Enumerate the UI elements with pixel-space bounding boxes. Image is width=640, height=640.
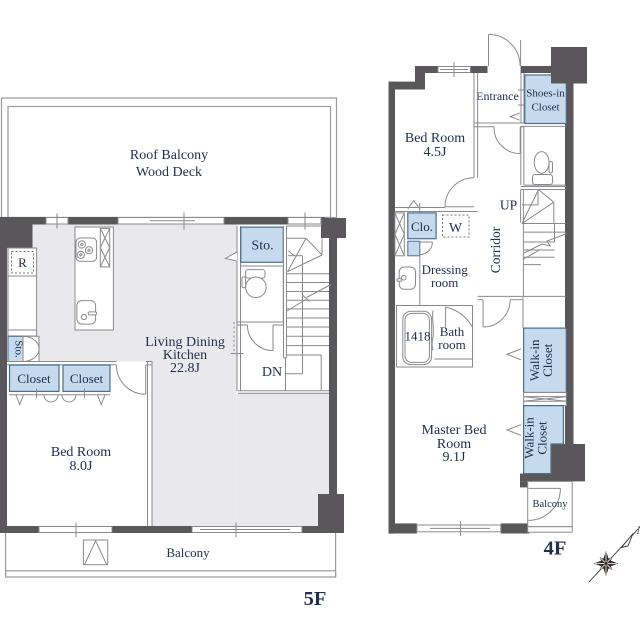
- svg-text:Wood Deck: Wood Deck: [136, 165, 202, 180]
- svg-text:5F: 5F: [304, 588, 327, 610]
- svg-text:Balcony: Balcony: [533, 499, 569, 510]
- svg-text:1418: 1418: [405, 329, 431, 344]
- svg-text:4F: 4F: [544, 538, 567, 560]
- svg-text:Roof Balcony: Roof Balcony: [130, 148, 208, 163]
- svg-text:Entrance: Entrance: [476, 89, 519, 103]
- svg-text:Closet: Closet: [531, 102, 559, 114]
- svg-text:DN: DN: [262, 365, 282, 380]
- svg-text:Balcony: Balcony: [166, 545, 210, 560]
- svg-text:Shoes-in: Shoes-in: [526, 88, 565, 100]
- svg-text:Closet: Closet: [17, 371, 51, 386]
- svg-text:Master Bed: Master Bed: [422, 423, 487, 438]
- svg-text:8.0J: 8.0J: [70, 459, 94, 474]
- svg-text:Sto.: Sto.: [251, 239, 273, 254]
- svg-text:22.8J: 22.8J: [170, 361, 201, 376]
- svg-text:4.5J: 4.5J: [424, 145, 448, 160]
- svg-text:Closet: Closet: [535, 421, 550, 455]
- svg-text:W: W: [449, 221, 463, 236]
- svg-text:room: room: [438, 337, 465, 352]
- svg-text:Corridor: Corridor: [488, 226, 503, 273]
- svg-text:UP: UP: [500, 198, 517, 213]
- svg-text:R: R: [18, 255, 27, 270]
- svg-text:N: N: [636, 523, 640, 537]
- svg-text:Clo.: Clo.: [411, 219, 433, 234]
- svg-text:9.1J: 9.1J: [443, 450, 467, 465]
- svg-text:Closet: Closet: [70, 371, 104, 386]
- svg-text:Bed Room: Bed Room: [51, 445, 111, 460]
- svg-text:Closet: Closet: [540, 343, 555, 377]
- svg-text:Bed Room: Bed Room: [405, 131, 465, 146]
- svg-text:room: room: [431, 275, 458, 290]
